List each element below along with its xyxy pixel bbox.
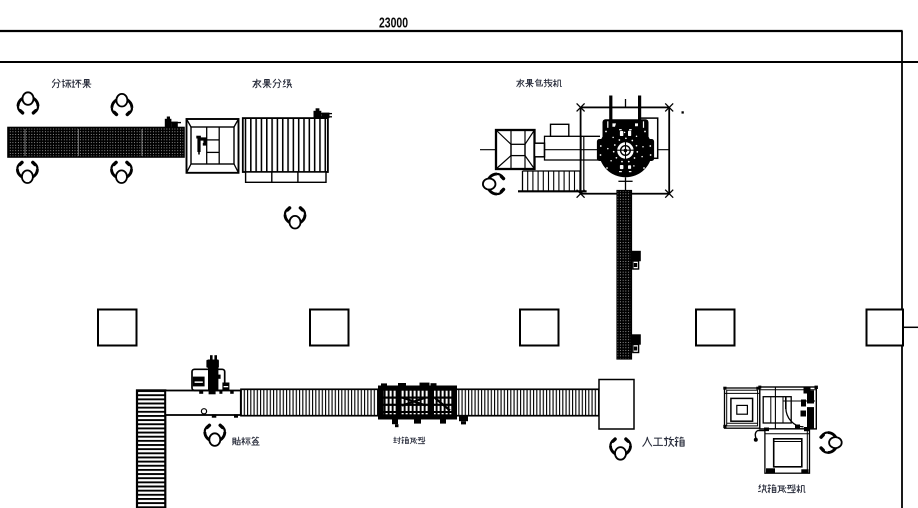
svg-text:23000: 23000 bbox=[379, 15, 408, 32]
